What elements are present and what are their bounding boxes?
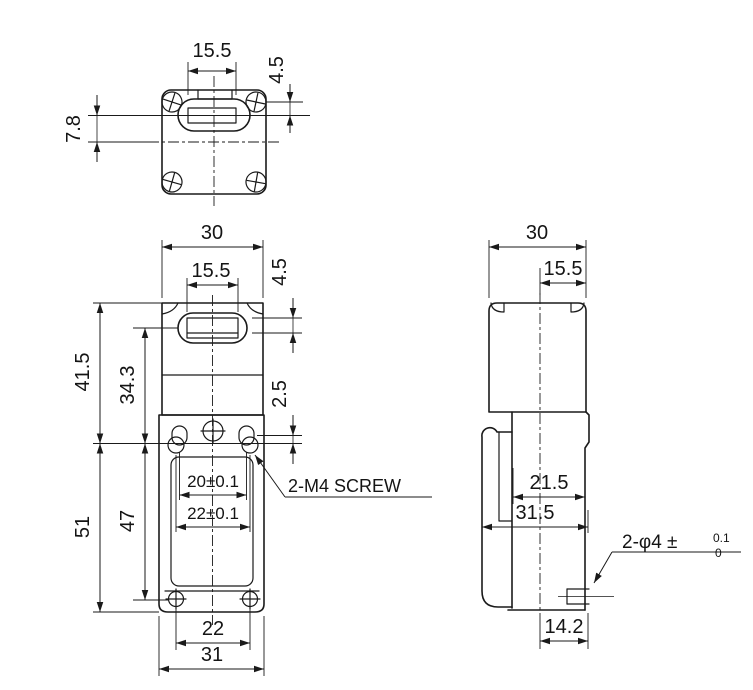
- side-view-lever-plate: [482, 428, 512, 607]
- side-view: 30 15.5 21.5 31.5 14.2 2-φ4 ± 0.1 0: [482, 222, 741, 649]
- dim-front-upper-height: 41.5: [72, 353, 94, 392]
- dim-front-hole-pitch-lower: 22±0.1: [187, 504, 239, 523]
- dim-front-mount-hole-offset: 2.5: [269, 380, 291, 408]
- dim-top-slot-center-offset: 4.5: [266, 56, 288, 84]
- dim-side-width: 30: [526, 222, 548, 244]
- label-phi4-tol-upper: 0.1: [713, 531, 730, 545]
- leader-arrow: [594, 552, 612, 583]
- label-phi4-tol-lower: 0: [715, 546, 722, 560]
- leader-arrow: [255, 455, 285, 497]
- front-view-bottom-screws: [166, 589, 260, 609]
- dim-front-slot-width: 15.5: [192, 260, 231, 282]
- dim-top-depth-offset: 7.8: [63, 115, 85, 143]
- label-phi4-note: 2-φ4 ±: [622, 532, 678, 553]
- label-mount-screw-note: 2-M4 SCREW: [288, 476, 401, 496]
- dim-front-base-width: 31: [201, 644, 223, 666]
- technical-drawing-canvas: 15.5 4.5 7.8: [0, 0, 753, 690]
- dim-front-mount-to-screw: 47: [117, 510, 139, 532]
- dim-front-slot-offset: 4.5: [269, 258, 291, 286]
- top-view-head-notch: [198, 90, 232, 99]
- dim-front-lower-height: 51: [72, 516, 94, 538]
- dim-front-hole-pitch-upper: 20±0.1: [187, 472, 239, 491]
- top-view: 15.5 4.5 7.8: [63, 40, 310, 206]
- dim-front-width: 30: [201, 222, 223, 244]
- dim-side-upper-depth: 21.5: [530, 472, 569, 494]
- dim-side-center-to-edge: 15.5: [544, 258, 583, 280]
- dim-front-slot-to-mount: 34.3: [117, 366, 139, 405]
- front-view-mount-slot-left: [168, 426, 187, 453]
- dim-side-full-depth: 31.5: [516, 502, 555, 524]
- side-view-head-outline: [489, 303, 586, 412]
- limit-switch-drawing: 15.5 4.5 7.8: [0, 0, 753, 690]
- dim-front-bottom-screw-pitch: 22: [202, 618, 224, 640]
- dim-top-slot-width: 15.5: [193, 40, 232, 62]
- front-view-corner-notch-right: [247, 303, 263, 314]
- side-view-phi4-hole: [558, 589, 614, 604]
- front-view-mount-slot-right: [239, 426, 258, 453]
- front-view-corner-notch-left: [162, 303, 178, 314]
- dim-side-hole-offset: 14.2: [545, 616, 584, 638]
- front-view-center-screw: [201, 419, 225, 443]
- front-view: 30 15.5 4.5 2.5 41.5 34.3 51 47 20±0.1: [72, 222, 432, 676]
